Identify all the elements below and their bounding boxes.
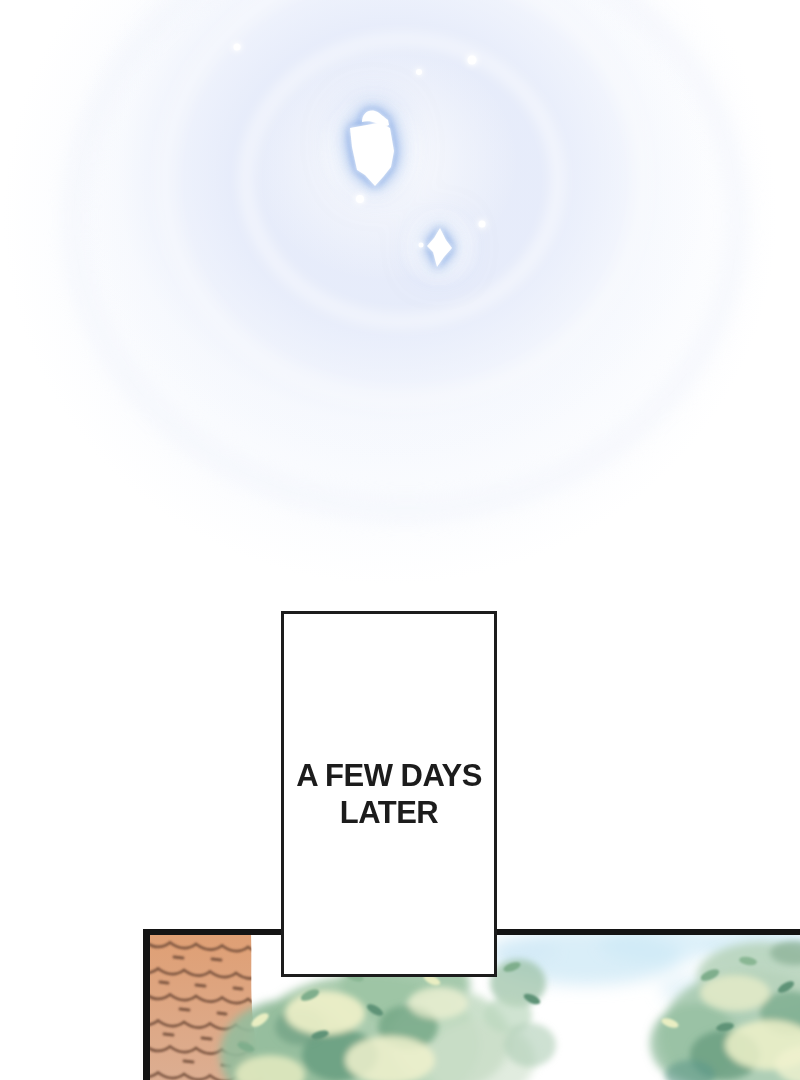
large-shard-shape [350,123,394,186]
light-particle-dot [234,44,241,51]
caption-text: A FEW DAYS LATER [296,757,482,832]
large-shard-curl [362,111,389,126]
caption-line-1: A FEW DAYS [296,757,482,794]
small-shard-shape [427,228,452,267]
light-particle-dot [479,221,486,228]
caption-line-2: LATER [296,794,482,831]
caption-box: A FEW DAYS LATER [281,611,497,977]
light-particle-dot [419,243,424,248]
falling-light-shards-illustration [0,0,800,420]
light-particle-dot [468,56,477,65]
webtoon-page: { "caption": { "full_text": "A FEW DAYS … [0,0,800,1080]
light-particle-dot [356,195,364,203]
light-particle-dot [416,69,422,75]
